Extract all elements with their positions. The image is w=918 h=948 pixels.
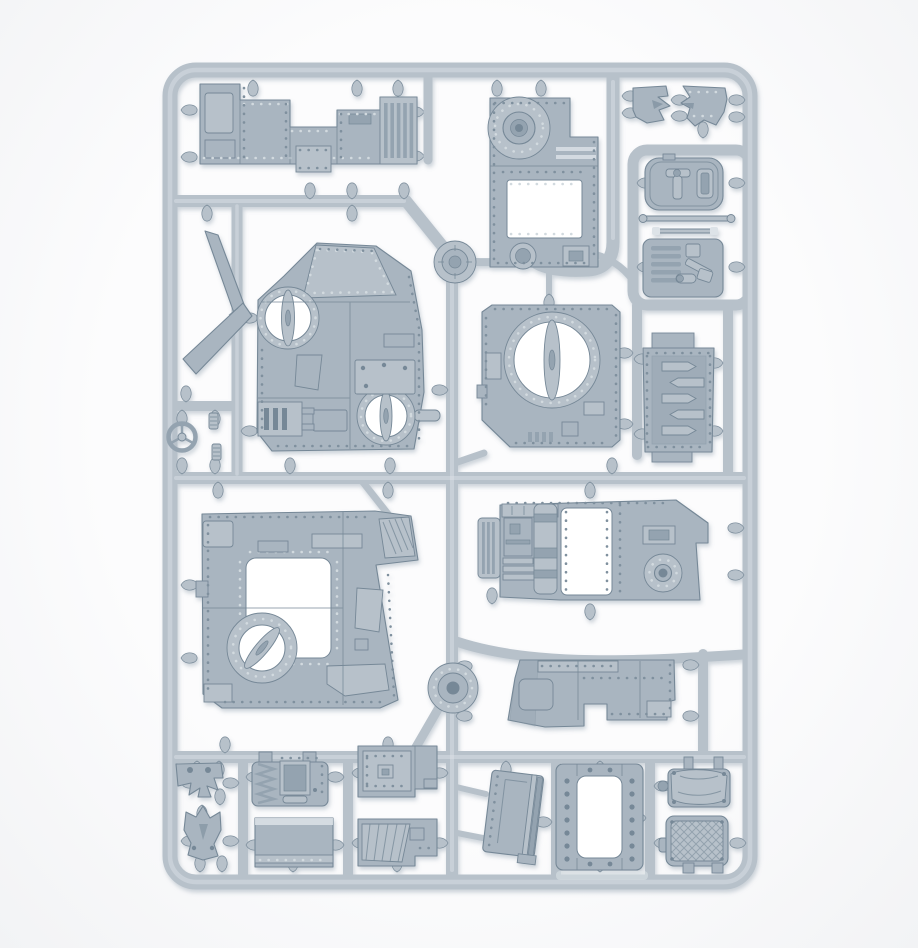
runner-disc-upper (434, 241, 476, 283)
turret-ring-plate (477, 305, 620, 447)
hull-side-panel (200, 84, 417, 172)
hatch-ring-upper (257, 287, 319, 349)
molded-code-strip (556, 871, 648, 880)
engine-cylinder (534, 504, 557, 594)
runner-disc-lower (428, 663, 478, 713)
turret-ring (504, 312, 600, 408)
gun-mount-ring (488, 97, 550, 159)
door-frame (556, 764, 643, 870)
hatch-door (645, 154, 723, 210)
hatch-ring-lower (357, 387, 440, 445)
sprue (169, 70, 751, 882)
louvre-door (643, 333, 714, 462)
louvre-grille (380, 97, 417, 164)
vent-panel (643, 239, 723, 297)
photo-backdrop (0, 0, 918, 948)
hull-front-plate (488, 97, 598, 269)
roof-plate (196, 511, 418, 708)
tread-pattern (671, 821, 723, 861)
roof-hatch-ring (227, 613, 297, 683)
glyph-plate-left (633, 86, 670, 123)
stepped-plate-planked (358, 819, 437, 866)
axle-rod (639, 215, 735, 223)
engine-bay (478, 500, 708, 600)
cab-plate (257, 243, 440, 451)
tread-hatch (659, 816, 728, 873)
engine-bay-opening (561, 508, 612, 595)
door-frame-opening (577, 776, 622, 858)
jaw-glyph-lower (184, 806, 221, 860)
radiator-grille (478, 518, 500, 578)
stepped-plate-riveted (358, 746, 437, 797)
side-door (481, 770, 545, 865)
armour-slab (255, 818, 333, 867)
sprue-photo (0, 0, 918, 948)
hull-opening (507, 180, 582, 238)
glyph-plate-right (681, 86, 727, 126)
roof-louvre (379, 517, 415, 558)
drive-hub (644, 554, 682, 592)
tarp-crate (658, 757, 730, 807)
glacis-plate (508, 660, 675, 727)
link-rod (652, 227, 718, 235)
